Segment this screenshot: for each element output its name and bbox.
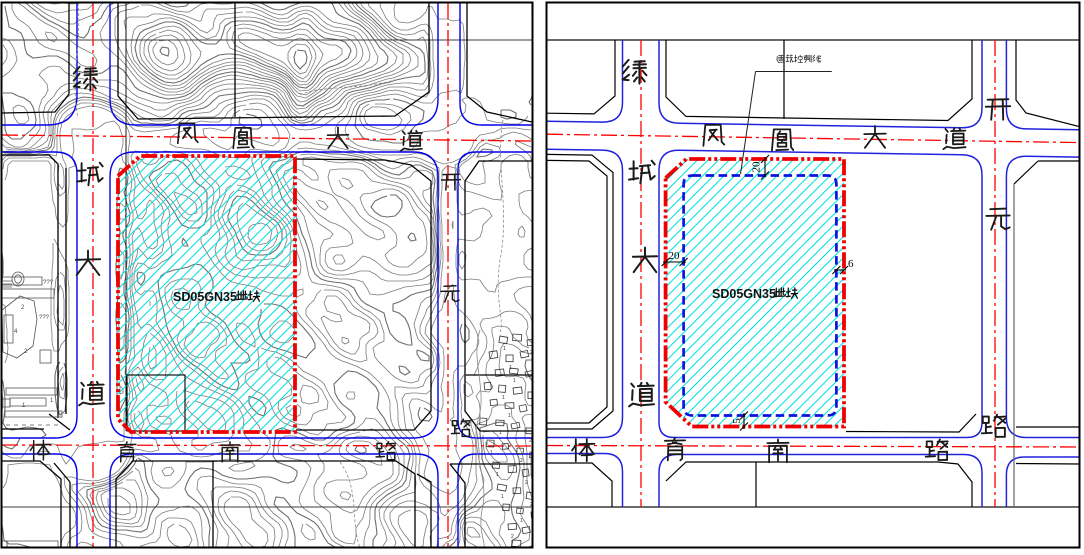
svg-text:1: 1 (499, 430, 502, 436)
svg-text:SD05GN35: SD05GN35 (173, 290, 237, 304)
svg-text:1: 1 (496, 472, 499, 478)
svg-text:1: 1 (490, 450, 493, 456)
svg-text:2: 2 (520, 458, 523, 464)
svg-text:1: 1 (502, 395, 505, 401)
svg-text:1: 1 (513, 378, 516, 384)
svg-text:2: 2 (525, 480, 528, 486)
svg-text:???: ??? (43, 280, 54, 286)
svg-text:20: 20 (751, 161, 763, 173)
svg-text:???: ??? (39, 315, 50, 321)
svg-text:1: 1 (520, 518, 523, 524)
svg-text:6: 6 (848, 258, 854, 270)
svg-text:1: 1 (501, 494, 504, 500)
svg-text:5: 5 (731, 418, 743, 424)
svg-text:1: 1 (503, 346, 506, 352)
svg-text:SD05GN35: SD05GN35 (712, 287, 776, 301)
svg-text:1: 1 (508, 413, 511, 419)
svg-text:1: 1 (509, 365, 512, 371)
svg-text:2: 2 (511, 534, 514, 540)
svg-text:20: 20 (669, 250, 681, 262)
